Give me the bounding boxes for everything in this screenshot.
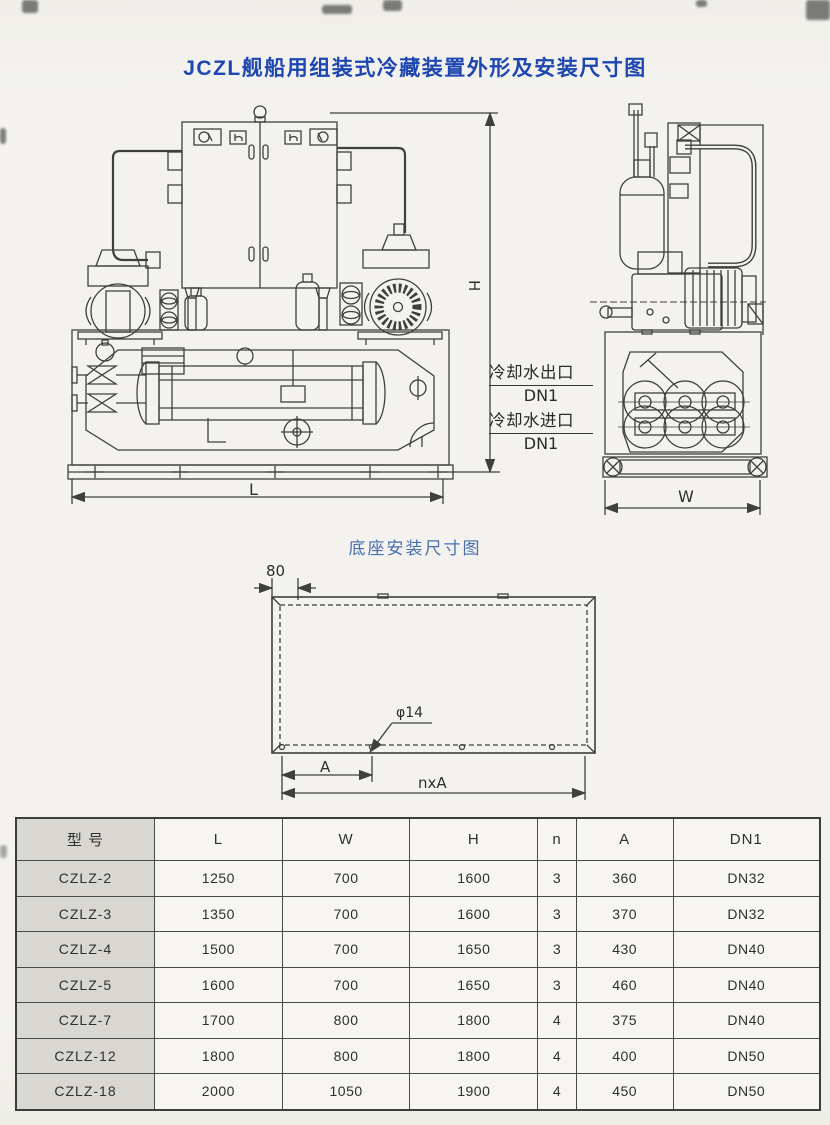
dim-label-80: 80 (266, 564, 285, 579)
table-header-cell: L (155, 818, 283, 861)
model-cell: CZLZ-5 (16, 967, 155, 1003)
model-cell: CZLZ-7 (16, 1003, 155, 1039)
bed-frame (68, 465, 453, 479)
table-cell: DN40 (673, 967, 820, 1003)
scan-artifact (322, 5, 352, 14)
table-cell: 1600 (410, 896, 538, 932)
dim-label-phi14: φ14 (396, 706, 423, 720)
table-cell: DN32 (673, 861, 820, 897)
model-cell: CZLZ-12 (16, 1038, 155, 1074)
front-view-drawing (60, 100, 505, 512)
table-cell: 2000 (155, 1074, 283, 1110)
suction-pipes (113, 148, 405, 260)
scan-artifact (806, 0, 830, 20)
bottle-center (296, 274, 319, 330)
base-plate-outline (272, 594, 595, 753)
scan-artifact (383, 0, 402, 11)
table-cell: 375 (576, 1003, 673, 1039)
table-cell: 3 (538, 932, 577, 968)
table-cell: 1600 (410, 861, 538, 897)
table-cell: 800 (282, 1038, 410, 1074)
table-cell: DN32 (673, 896, 820, 932)
table-cell: 700 (282, 861, 410, 897)
inlet-dn-label: DN1 (489, 434, 593, 455)
table-cell: 4 (538, 1038, 577, 1074)
table-cell: 700 (282, 896, 410, 932)
suction-riser-pipes (629, 104, 657, 177)
table-header-cell: 型 号 (16, 818, 155, 861)
table-cell: DN50 (673, 1038, 820, 1074)
table-cell: DN50 (673, 1074, 820, 1110)
left-compressor (78, 250, 162, 345)
table-cell: 3 (538, 967, 577, 1003)
table-row: CZLZ-12 1800 800 1800 4 400 DN50 (16, 1038, 820, 1074)
scan-artifact (696, 0, 707, 7)
table-cell: 1800 (410, 1038, 538, 1074)
table-cell: 1350 (155, 896, 283, 932)
dim-label-w: W (678, 489, 694, 505)
dim-label-h: H (466, 280, 481, 291)
gauge-column-right (340, 283, 362, 325)
dim-label-l: L (249, 482, 258, 498)
table-row: CZLZ-18 2000 1050 1900 4 450 DN50 (16, 1074, 820, 1110)
table-cell: 1650 (410, 967, 538, 1003)
table-row: CZLZ-3 1350 700 1600 3 370 DN32 (16, 896, 820, 932)
table-cell: 1700 (155, 1003, 283, 1039)
table-header-cell: n (538, 818, 577, 861)
hole-leader (370, 723, 432, 752)
discharge-pipe-loop (677, 140, 754, 265)
table-cell: 700 (282, 932, 410, 968)
table-cell: 1900 (410, 1074, 538, 1110)
table-header-row: 型 号 L W H n A DN1 (16, 818, 820, 861)
table-cell: 4 (538, 1074, 577, 1110)
table-cell: 4 (538, 1003, 577, 1039)
model-cell: CZLZ-3 (16, 896, 155, 932)
scan-artifact (0, 845, 7, 858)
table-cell: 800 (282, 1003, 410, 1039)
scan-artifact (22, 0, 38, 13)
table-cell: DN40 (673, 932, 820, 968)
table-cell: 3 (538, 861, 577, 897)
table-cell: 1800 (410, 1003, 538, 1039)
base-unit (72, 330, 449, 465)
table-row: CZLZ-7 1700 800 1800 4 375 DN40 (16, 1003, 820, 1039)
table-cell: 1500 (155, 932, 283, 968)
table-cell: 460 (576, 967, 673, 1003)
table-row: CZLZ-5 1600 700 1650 3 460 DN40 (16, 967, 820, 1003)
table-cell: 450 (576, 1074, 673, 1110)
spec-table: 型 号 L W H n A DN1 CZLZ-2 1250 700 1600 3… (15, 817, 821, 1111)
table-row: CZLZ-4 1500 700 1650 3 430 DN40 (16, 932, 820, 968)
table-cell: 700 (282, 967, 410, 1003)
model-cell: CZLZ-4 (16, 932, 155, 968)
table-cell: 3 (538, 896, 577, 932)
table-cell: 1800 (155, 1038, 283, 1074)
cooling-water-labels: 冷却水出口 DN1 冷却水进口 DN1 (489, 359, 593, 455)
table-cell: 1250 (155, 861, 283, 897)
inlet-label: 冷却水进口 (489, 407, 593, 434)
gauge-column-left (160, 290, 178, 330)
table-cell: 1650 (410, 932, 538, 968)
right-compressor (358, 224, 442, 345)
catalog-page: JCZL舰船用组装式冷藏装置外形及安装尺寸图 底座安装尺寸图 (0, 0, 830, 1125)
table-header-cell: H (410, 818, 538, 861)
base-mounting-diagram (250, 560, 620, 805)
table-cell: 1050 (282, 1074, 410, 1110)
table-header-cell: W (282, 818, 410, 861)
table-cell: 360 (576, 861, 673, 897)
model-cell: CZLZ-18 (16, 1074, 155, 1110)
table-cell: 1600 (155, 967, 283, 1003)
scan-artifact (0, 128, 6, 144)
table-cell: 430 (576, 932, 673, 968)
side-base-bar (603, 457, 767, 477)
table-cell: 400 (576, 1038, 673, 1074)
table-row: CZLZ-2 1250 700 1600 3 360 DN32 (16, 861, 820, 897)
table-cell: DN40 (673, 1003, 820, 1039)
dim-label-nxa: nxA (418, 776, 447, 791)
table-cell: 370 (576, 896, 673, 932)
outlet-dn-label: DN1 (489, 386, 593, 407)
table-header-cell: A (576, 818, 673, 861)
model-cell: CZLZ-2 (16, 861, 155, 897)
side-view-drawing (590, 100, 830, 520)
dim-label-a: A (320, 760, 330, 775)
condenser-end-view (605, 332, 761, 454)
outlet-label: 冷却水出口 (489, 359, 593, 386)
page-title: JCZL舰船用组装式冷藏装置外形及安装尺寸图 (0, 52, 830, 82)
base-diagram-title: 底座安装尺寸图 (0, 534, 830, 559)
table-header-cell: DN1 (673, 818, 820, 861)
